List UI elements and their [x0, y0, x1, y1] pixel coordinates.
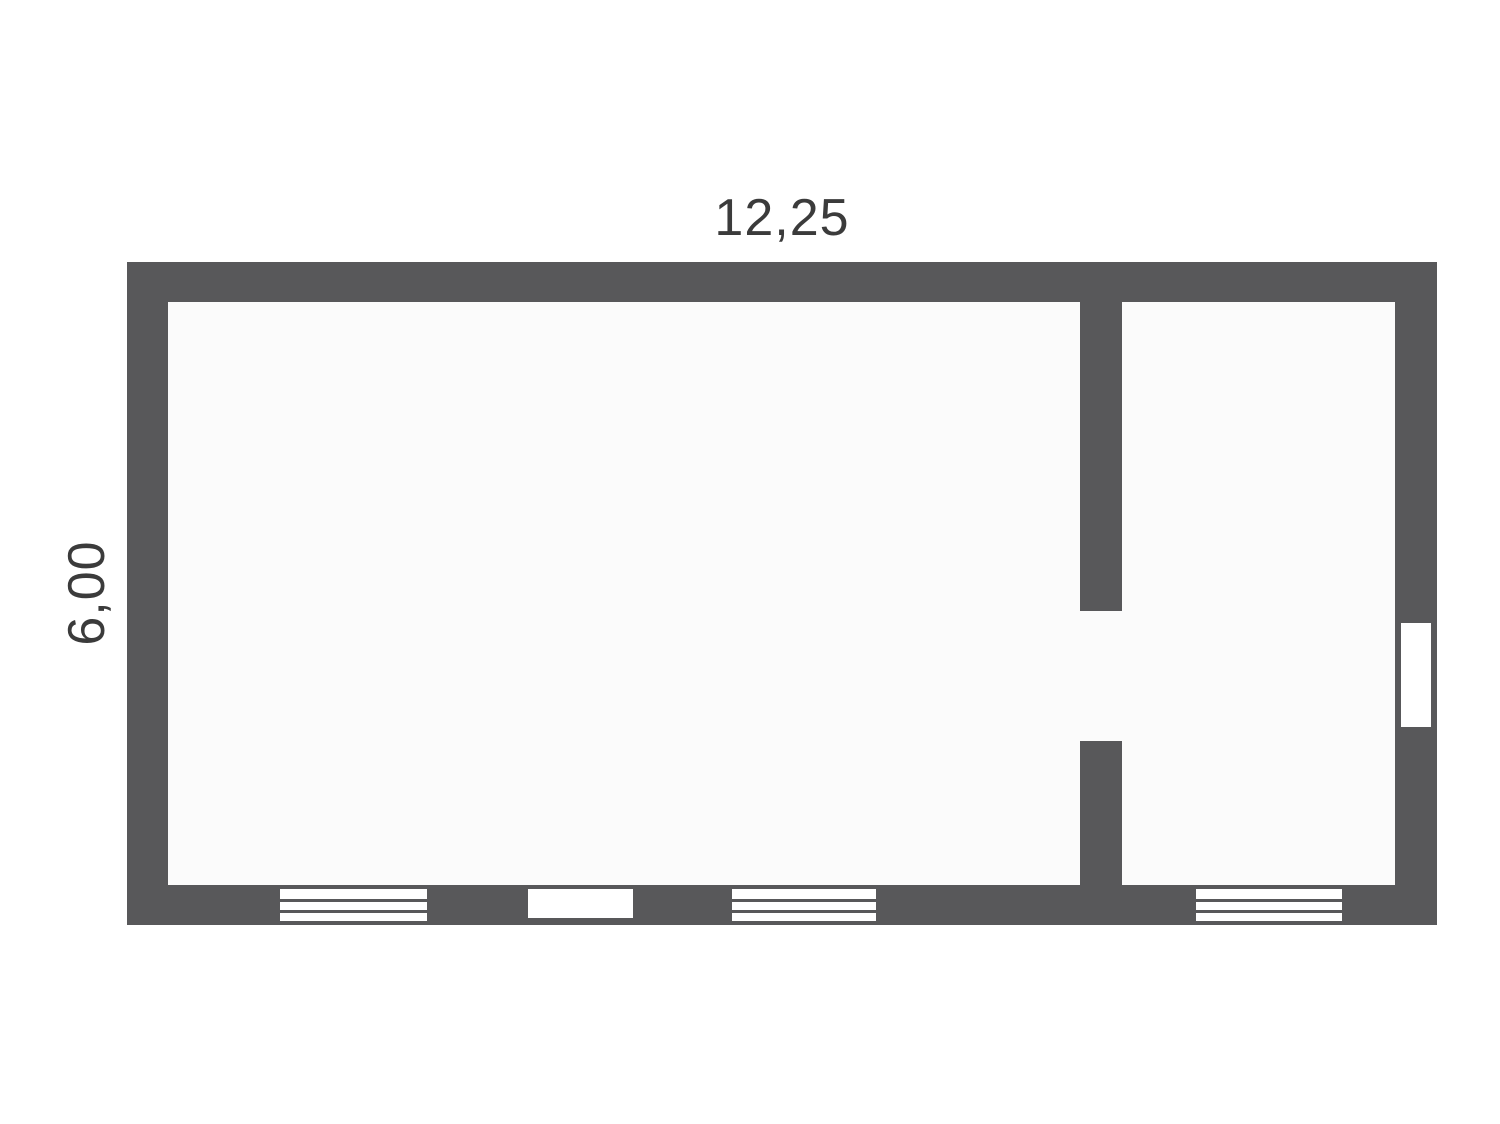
door-bottom [528, 889, 633, 918]
window-pane [732, 902, 876, 910]
floor-plan [127, 262, 1437, 925]
main-room-floor [168, 302, 1080, 885]
window-bottom-3 [1196, 889, 1342, 921]
window-pane [1196, 889, 1342, 899]
window-pane [732, 913, 876, 921]
window-pane [280, 889, 427, 899]
window-bottom-1 [280, 889, 427, 921]
window-pane [280, 902, 427, 910]
secondary-room-floor [1122, 302, 1395, 885]
window-pane [732, 889, 876, 899]
window-pane [280, 913, 427, 921]
window-pane [1196, 902, 1342, 910]
width-dimension-label: 12,25 [127, 192, 1437, 244]
window-right-wall [1401, 623, 1431, 727]
window-bottom-2 [732, 889, 876, 921]
window-pane [1196, 913, 1342, 921]
height-dimension-label: 6,00 [61, 513, 113, 673]
floor-plan-page: { "colors": { "background": "#ffffff", "… [0, 0, 1500, 1124]
partition-doorway-opening [1080, 611, 1122, 741]
